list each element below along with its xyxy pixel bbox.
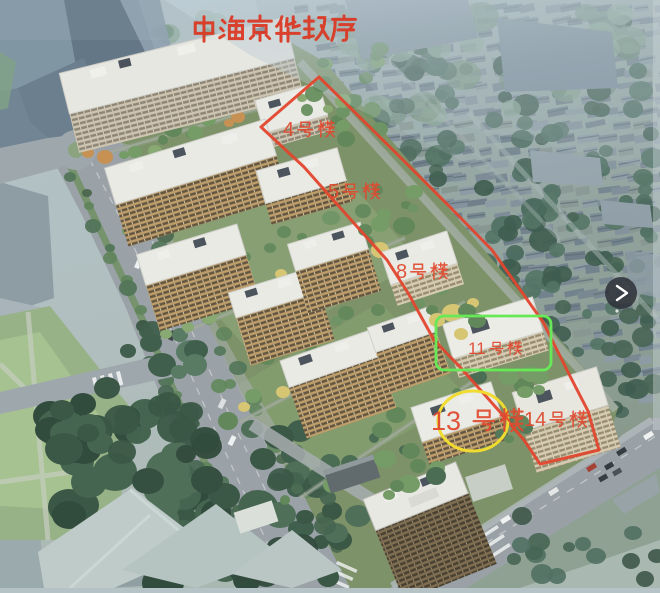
svg-text:13: 13 [431, 406, 461, 436]
svg-text:5: 5 [328, 181, 339, 203]
svg-text:11: 11 [468, 339, 486, 358]
svg-text:4: 4 [283, 119, 294, 141]
svg-text:14: 14 [524, 409, 546, 431]
svg-text:8: 8 [396, 261, 407, 283]
